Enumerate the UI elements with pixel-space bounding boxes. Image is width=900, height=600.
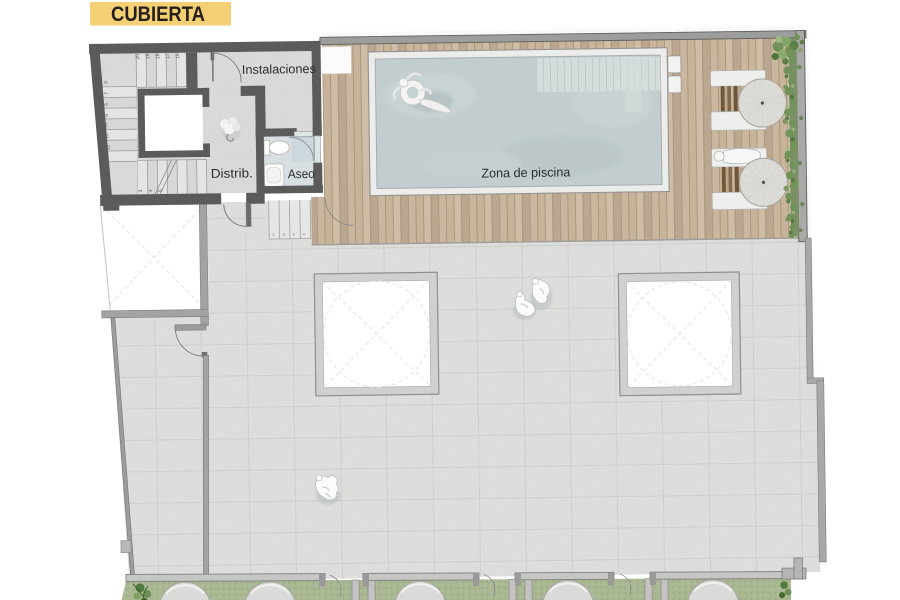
svg-text:16: 16: [175, 53, 181, 59]
svg-text:19: 19: [145, 53, 151, 59]
svg-text:9: 9: [104, 81, 110, 84]
svg-text:Aseo: Aseo: [288, 166, 315, 181]
svg-text:7: 7: [104, 92, 110, 95]
svg-text:Distrib.: Distrib.: [211, 165, 253, 181]
svg-text:CUBIERTA: CUBIERTA: [111, 2, 205, 26]
svg-text:Zona de piscina: Zona de piscina: [481, 164, 571, 180]
svg-text:17: 17: [165, 53, 171, 59]
svg-text:20: 20: [135, 54, 141, 60]
svg-text:18: 18: [155, 53, 161, 59]
svg-text:5: 5: [158, 189, 164, 192]
svg-text:3: 3: [138, 189, 144, 192]
svg-text:Instalaciones: Instalaciones: [242, 62, 316, 77]
svg-text:4: 4: [148, 189, 154, 192]
svg-text:6: 6: [104, 103, 110, 106]
